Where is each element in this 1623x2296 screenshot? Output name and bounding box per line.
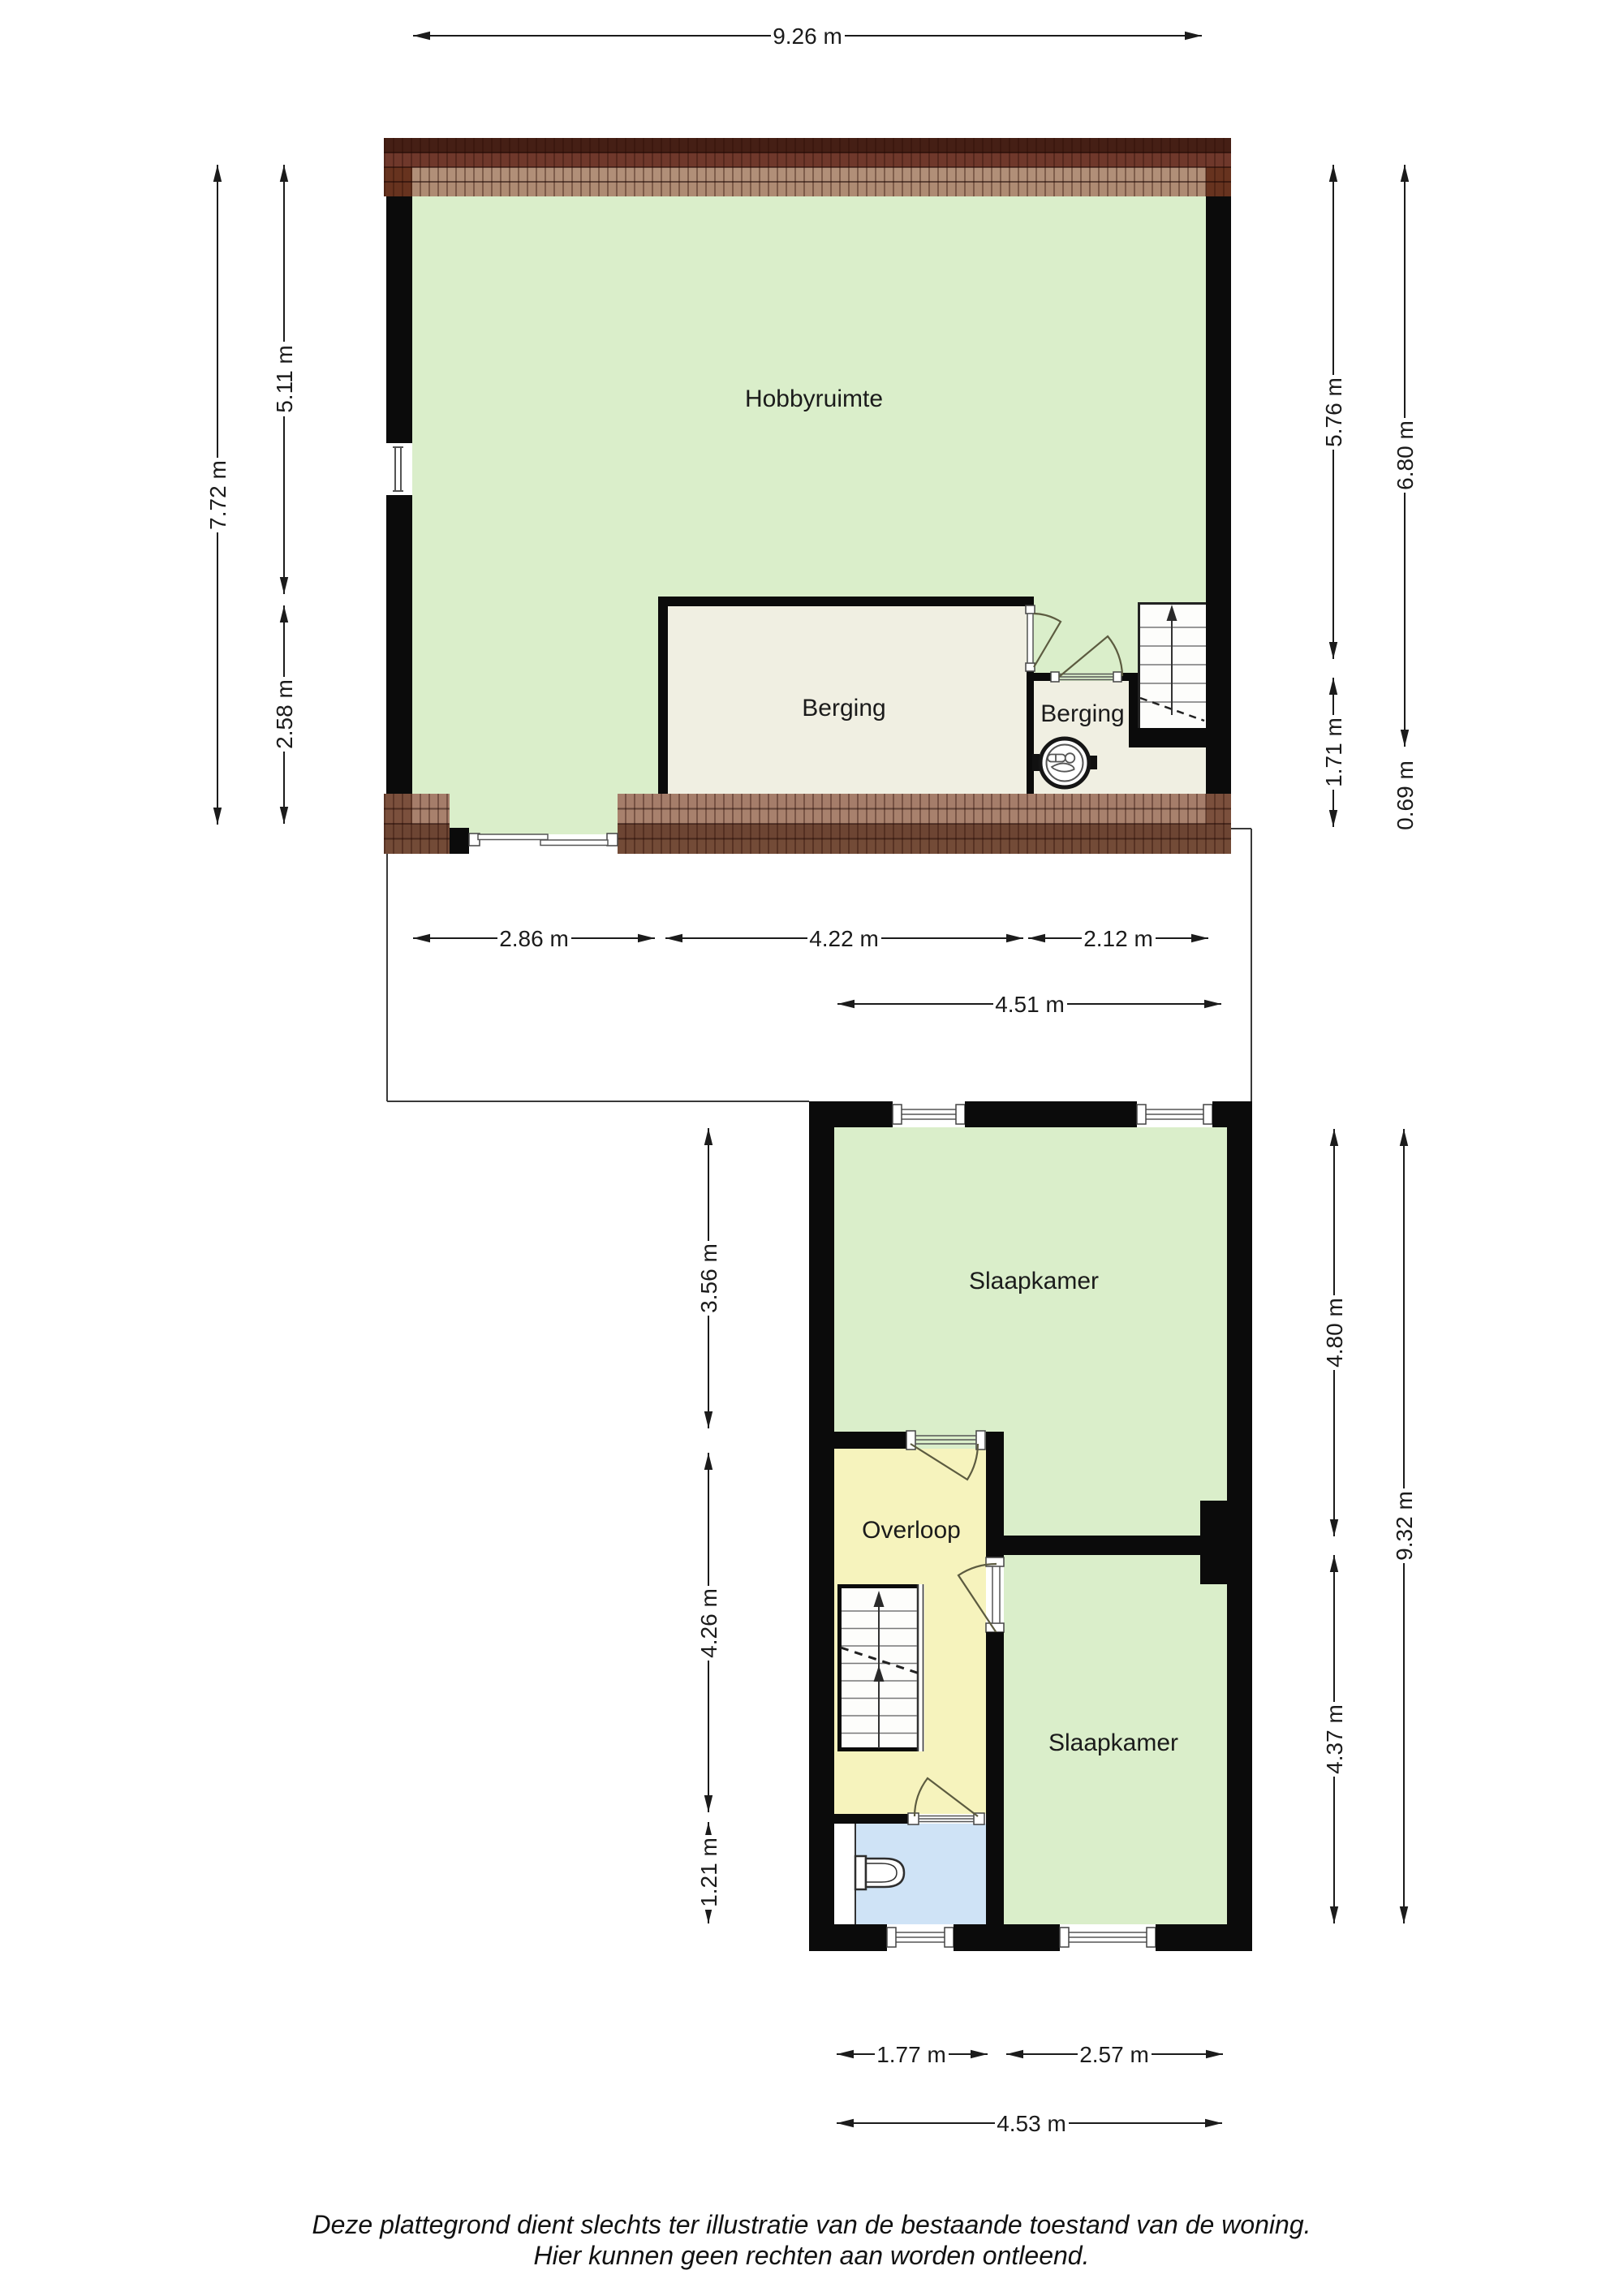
svg-text:Hobbyruimte: Hobbyruimte [745, 386, 883, 412]
svg-text:9.32 m: 9.32 m [1392, 1491, 1417, 1561]
svg-text:1.21 m: 1.21 m [696, 1837, 721, 1907]
svg-text:Deze plattegrond dient slechts: Deze plattegrond dient slechts ter illus… [312, 2210, 1311, 2239]
svg-text:4.53 m: 4.53 m [997, 2111, 1066, 2136]
svg-text:1.77 m: 1.77 m [876, 2042, 946, 2067]
svg-text:Hier kunnen geen rechten aan w: Hier kunnen geen rechten aan worden ontl… [534, 2241, 1090, 2270]
svg-text:Slaapkamer: Slaapkamer [969, 1268, 1099, 1294]
svg-text:5.11 m: 5.11 m [272, 345, 297, 413]
svg-text:3.56 m: 3.56 m [696, 1243, 721, 1313]
svg-text:6.80 m: 6.80 m [1393, 420, 1418, 490]
svg-text:0.69 m: 0.69 m [1393, 760, 1418, 830]
svg-text:9.26 m: 9.26 m [773, 24, 842, 49]
svg-text:Slaapkamer: Slaapkamer [1048, 1730, 1178, 1756]
svg-text:7.72 m: 7.72 m [205, 460, 230, 530]
svg-text:4.26 m: 4.26 m [696, 1588, 721, 1658]
svg-text:2.57 m: 2.57 m [1079, 2042, 1149, 2067]
svg-text:5.76 m: 5.76 m [1321, 377, 1346, 447]
svg-text:4.37 m: 4.37 m [1322, 1704, 1347, 1774]
svg-text:Berging: Berging [1040, 700, 1124, 727]
svg-text:4.51 m: 4.51 m [995, 992, 1065, 1017]
svg-text:2.86 m: 2.86 m [499, 926, 569, 951]
svg-text:2.58 m: 2.58 m [272, 679, 297, 749]
svg-text:1.71 m: 1.71 m [1321, 717, 1346, 787]
svg-text:4.80 m: 4.80 m [1322, 1298, 1347, 1368]
svg-text:4.22 m: 4.22 m [809, 926, 879, 951]
svg-text:2.12 m: 2.12 m [1083, 926, 1153, 951]
svg-text:Overloop: Overloop [862, 1517, 961, 1544]
svg-text:Berging: Berging [802, 695, 885, 722]
